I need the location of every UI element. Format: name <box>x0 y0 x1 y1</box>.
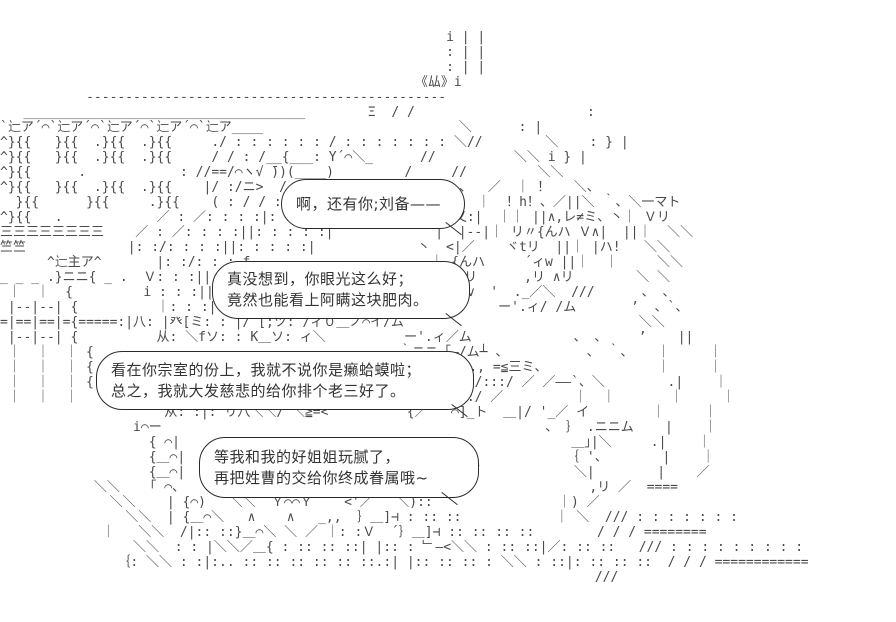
dialogue-text: 总之，我就大发慈悲的给你排个老三好了。 <box>111 381 459 402</box>
dialogue-text: 啊，还有你;刘备—— <box>296 194 450 215</box>
aa-scene-canvas: i | | : | | : | | 《厸》i <box>0 0 896 622</box>
speech-bubble-3: 看在你宗室的份上，我就不说你是癞蛤蟆啦； 总之，我就大发慈悲的给你排个老三好了。 <box>96 351 474 410</box>
speech-bubble-4: 等我和我的好姐姐玩腻了， 再把姓曹的交给你终成眷属哦~ <box>199 437 479 498</box>
speech-bubble-2: 真没想到，你眼光这么好； 竟然也能看上阿瞒这块肥肉。 <box>212 261 470 319</box>
dialogue-text: 竟然也能看上阿瞒这块肥肉。 <box>227 290 455 311</box>
dialogue-text: 再把姓曹的交给你终成眷属哦~ <box>214 468 464 489</box>
dialogue-text: 真没想到，你眼光这么好； <box>227 269 455 290</box>
speech-bubble-1: 啊，还有你;刘备—— <box>281 179 465 229</box>
dialogue-text: 等我和我的好姐姐玩腻了， <box>214 447 464 468</box>
dialogue-text: 看在你宗室的份上，我就不说你是癞蛤蟆啦； <box>111 360 459 381</box>
